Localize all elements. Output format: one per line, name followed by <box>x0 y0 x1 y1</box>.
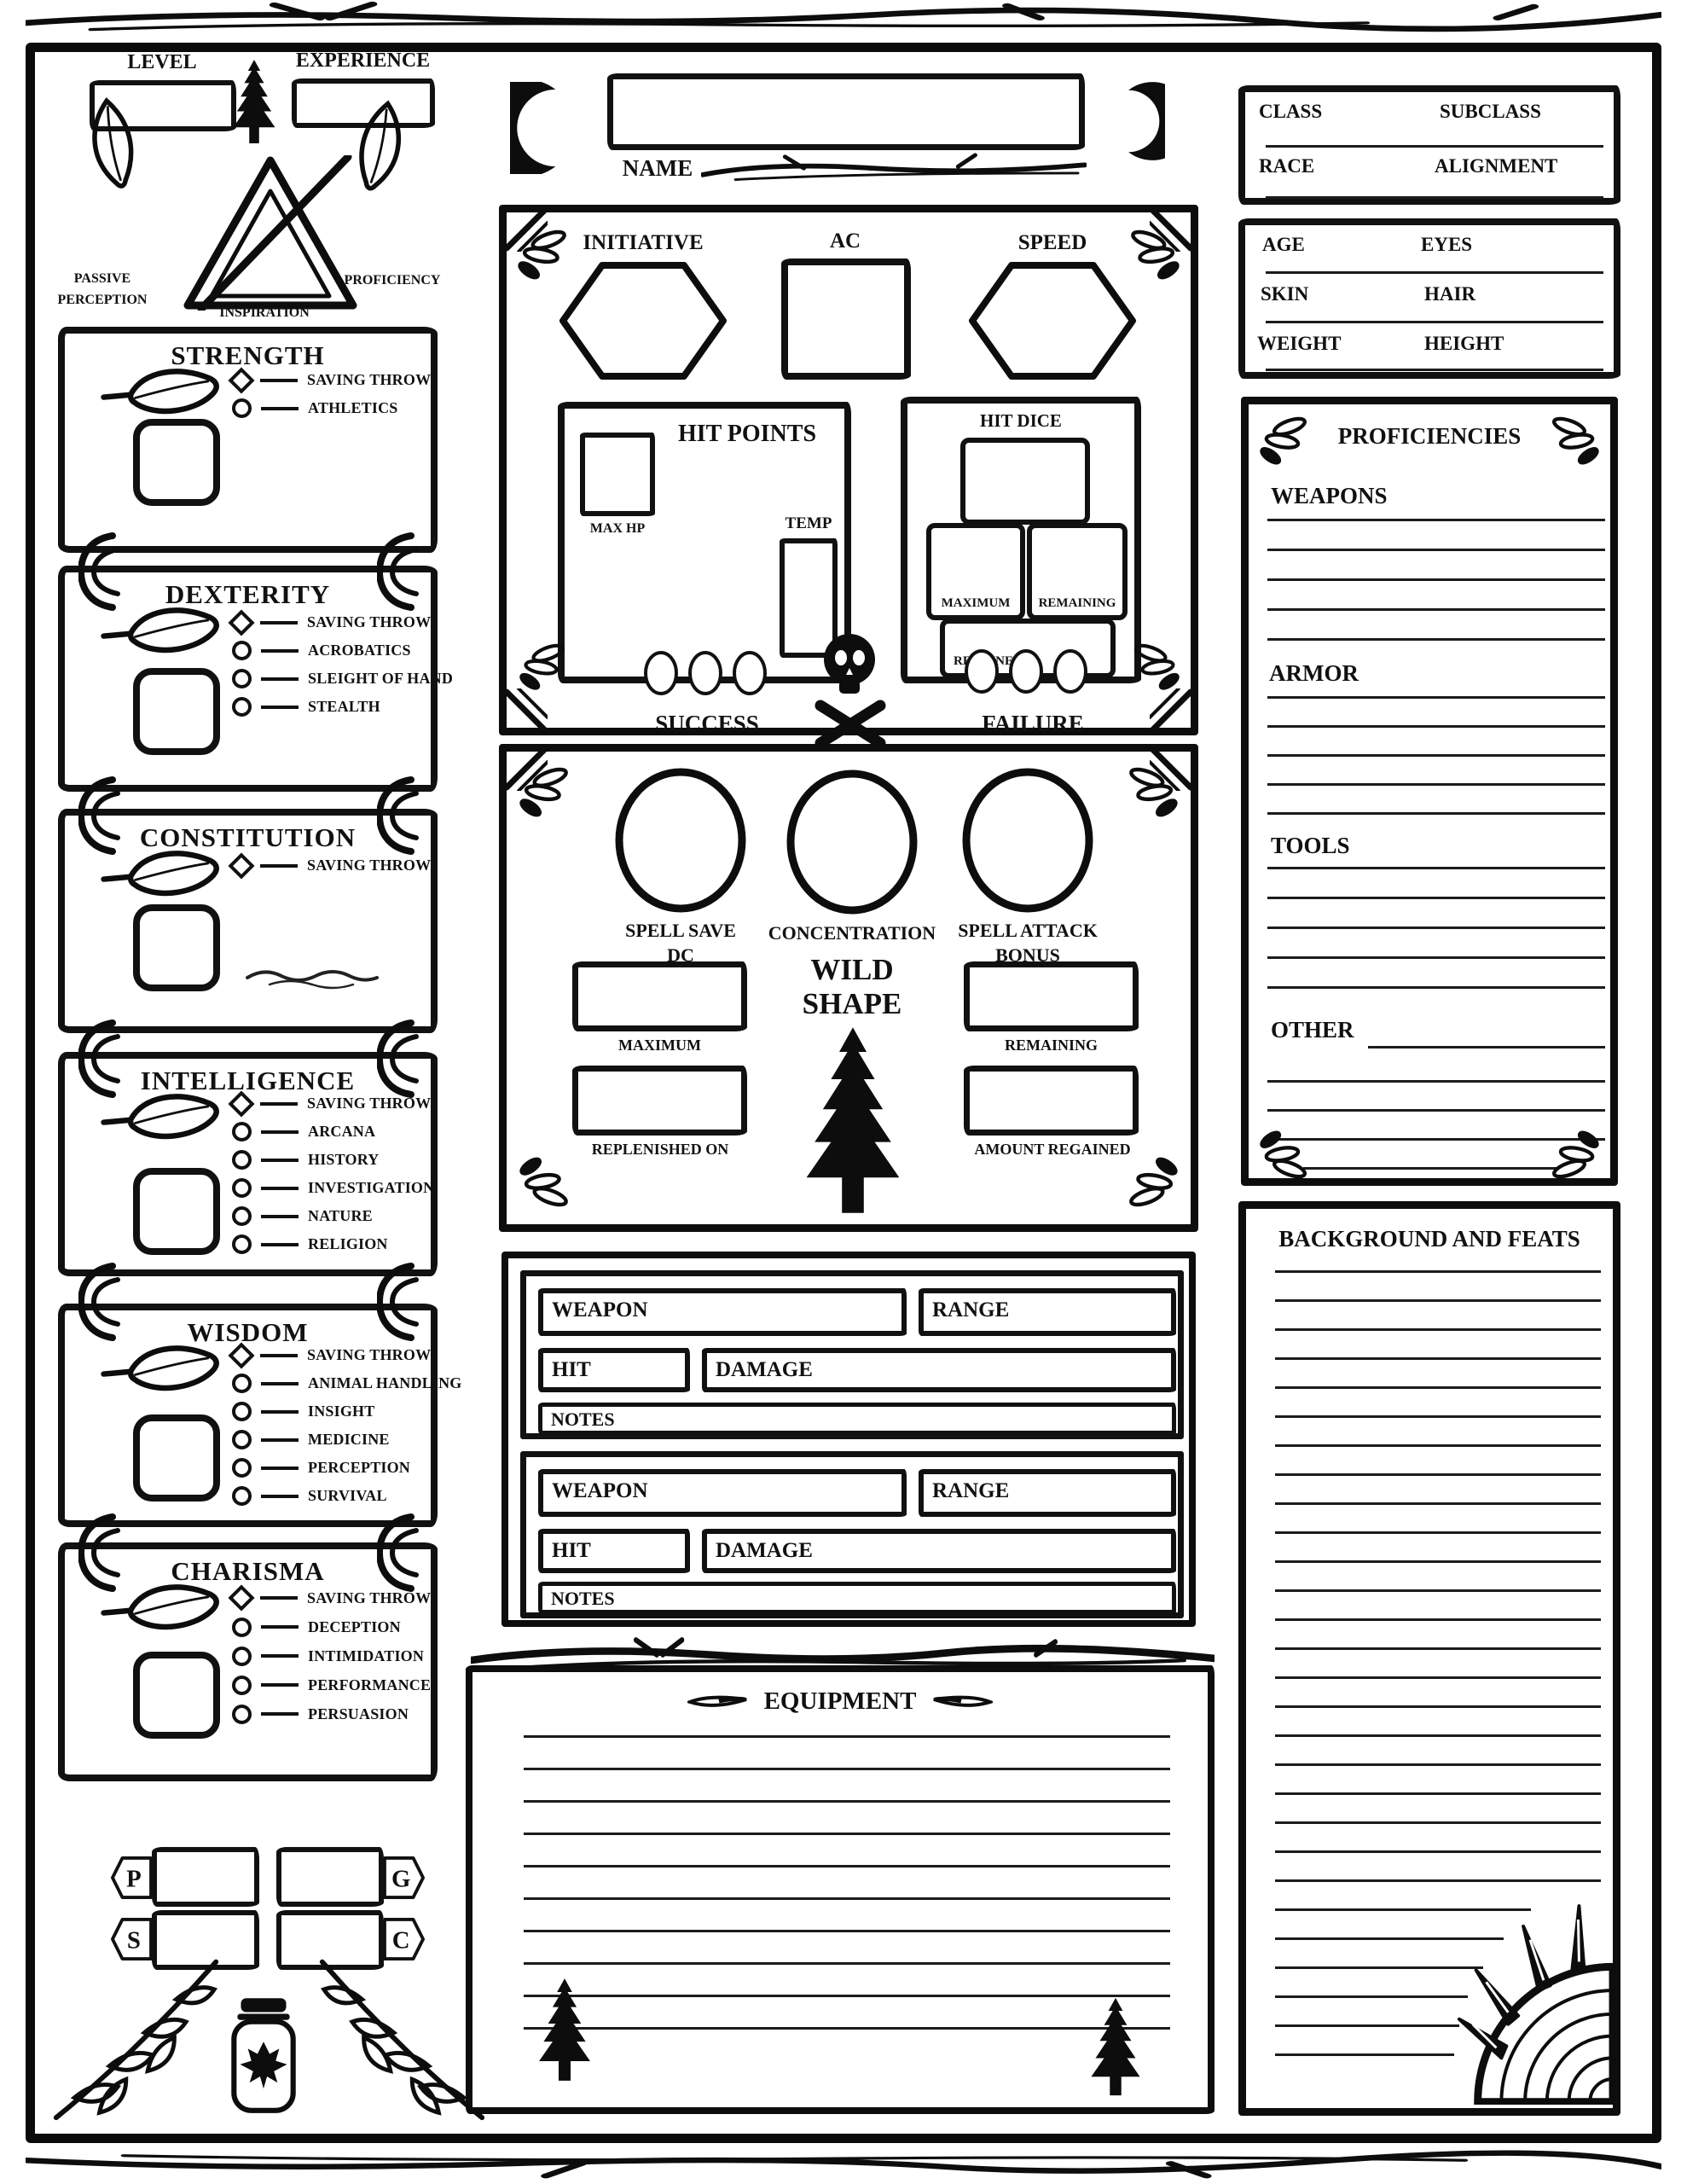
write-in-line[interactable] <box>524 1930 1170 1932</box>
write-in-line[interactable] <box>1267 783 1605 786</box>
jar-maple-leaf-icon <box>220 1996 307 2114</box>
write-in-line[interactable] <box>1275 1299 1601 1302</box>
hit-dice-box: HIT DICE MAXIMUM REMAINING REGAINED <box>901 397 1141 683</box>
equipment-lines <box>524 1735 1170 2059</box>
dash <box>261 1712 299 1716</box>
write-in-line[interactable] <box>1275 1531 1601 1534</box>
skill-row: SURVIVAL <box>232 1482 462 1510</box>
write-in-line[interactable] <box>1267 926 1605 929</box>
skill-row: ANIMAL HANDLING <box>232 1369 462 1397</box>
skill-row: PERCEPTION <box>232 1454 462 1482</box>
dash <box>261 1683 299 1687</box>
skill-marker[interactable] <box>232 1178 252 1198</box>
ring-connector-icon <box>377 775 426 857</box>
pine-tree-icon <box>223 43 285 160</box>
weapon-hit-field[interactable]: HIT <box>538 1529 690 1573</box>
dash <box>261 1382 299 1385</box>
initiative-label: INITIATIVE <box>558 231 728 255</box>
dash <box>260 1596 298 1600</box>
dash <box>260 864 298 868</box>
initiative-box[interactable] <box>558 260 728 381</box>
skill-row: INSIGHT <box>232 1397 462 1426</box>
weapon-range-field[interactable]: RANGE <box>919 1288 1176 1336</box>
tools-section-label: TOOLS <box>1271 833 1350 859</box>
write-in-line[interactable] <box>1275 2024 1459 2027</box>
saving-throw-marker[interactable] <box>228 609 254 636</box>
skill-row: SAVING THROW <box>232 366 431 394</box>
moon-icon <box>510 82 588 174</box>
write-in-line[interactable] <box>1275 1328 1601 1331</box>
write-in-line[interactable] <box>1267 608 1605 611</box>
leaf-icon <box>97 361 227 424</box>
wild-shape-amount-box[interactable] <box>964 1066 1139 1136</box>
leaf-sprig-icon <box>1549 1128 1600 1179</box>
armor-lines <box>1267 696 1605 841</box>
weapon-name-field[interactable]: WEAPON <box>538 1288 907 1336</box>
write-in-line[interactable] <box>1267 549 1605 551</box>
physical-details-box: AGE EYES SKIN HAIR WEIGHT HEIGHT <box>1238 218 1620 379</box>
dash <box>261 1215 299 1218</box>
write-in-line[interactable] <box>1267 1080 1605 1083</box>
weight-line[interactable] <box>1266 369 1603 371</box>
leaf-sprig-icon <box>1259 1128 1310 1179</box>
write-in-line[interactable] <box>1275 2053 1454 2056</box>
death-save-success-circles <box>641 649 769 697</box>
weapon-name-field[interactable]: WEAPON <box>538 1469 907 1517</box>
hit-dice-label: HIT DICE <box>907 410 1134 432</box>
skill-marker[interactable] <box>232 1618 252 1637</box>
name-label: NAME <box>611 155 704 182</box>
dash <box>260 1102 298 1106</box>
write-in-line[interactable] <box>524 1995 1170 1997</box>
skill-row: INTIMIDATION <box>232 1641 431 1670</box>
max-hp-label: MAX HP <box>573 521 662 537</box>
skill-marker[interactable] <box>232 1374 252 1393</box>
branch-bottom-icon <box>26 2143 1661 2182</box>
ring-connector-icon <box>377 531 426 613</box>
tools-lines <box>1267 867 1605 1016</box>
dash <box>261 677 299 681</box>
write-in-line[interactable] <box>524 1800 1170 1803</box>
background-feats-title: BACKGROUND AND FEATS <box>1246 1226 1613 1252</box>
leaf-sprig-icon <box>1131 643 1180 693</box>
leaf-icon <box>97 1338 227 1401</box>
skill-marker[interactable] <box>232 669 252 688</box>
proficiency-label: PROFICIENCY <box>341 273 443 288</box>
intelligence-score-box[interactable] <box>133 1168 220 1255</box>
svg-text:P: P <box>126 1866 142 1893</box>
weapon-hit-field[interactable]: HIT <box>538 1348 690 1392</box>
background-feats-panel: BACKGROUND AND FEATS <box>1238 1201 1620 2116</box>
experience-label: EXPERIENCE <box>288 49 438 73</box>
wild-shape-replenished-label: REPLENISHED ON <box>558 1141 762 1159</box>
race-line[interactable] <box>1266 196 1603 199</box>
write-in-line[interactable] <box>1275 1560 1601 1563</box>
name-box[interactable] <box>607 73 1085 150</box>
skill-row: DECEPTION <box>232 1612 431 1641</box>
write-in-line[interactable] <box>524 1768 1170 1770</box>
write-in-line[interactable] <box>1267 812 1605 815</box>
max-hp-box[interactable] <box>580 433 655 516</box>
leaf-sprig-icon <box>1126 767 1179 820</box>
write-in-line[interactable] <box>1275 1647 1601 1650</box>
write-in-line[interactable] <box>524 1865 1170 1867</box>
write-in-line[interactable] <box>1275 1763 1601 1766</box>
dash <box>261 1654 299 1658</box>
ring-connector-icon <box>377 1261 426 1343</box>
write-in-line[interactable] <box>1275 1357 1601 1360</box>
skill-row: PERFORMANCE <box>232 1670 431 1699</box>
level-label: LEVEL <box>85 51 239 74</box>
dash <box>261 1467 299 1470</box>
inspiration-label: INSPIRATION <box>213 305 316 321</box>
skill-row: MEDICINE <box>232 1426 462 1454</box>
ring-connector-icon <box>78 775 128 857</box>
wild-shape-amount-label: AMOUNT REGAINED <box>950 1141 1155 1159</box>
wild-shape-remaining-box[interactable] <box>964 961 1139 1031</box>
success-circle[interactable] <box>686 649 725 697</box>
hit-dice-maximum-box[interactable]: MAXIMUM <box>926 523 1025 620</box>
weapon-damage-field[interactable]: DAMAGE <box>702 1529 1176 1573</box>
moon-icon <box>1102 80 1165 162</box>
pine-tree-icon <box>785 1023 921 1217</box>
leaf-icon <box>67 90 161 199</box>
write-in-line[interactable] <box>1275 1386 1601 1389</box>
dash <box>261 407 299 410</box>
write-in-line[interactable] <box>1275 1270 1601 1273</box>
platinum-box[interactable] <box>152 1847 259 1907</box>
dexterity-score-box[interactable] <box>133 668 220 755</box>
strength-score-box[interactable] <box>133 419 220 506</box>
write-in-line[interactable] <box>524 1962 1170 1965</box>
class-line[interactable] <box>1266 145 1603 148</box>
ac-label: AC <box>771 229 919 253</box>
skill-marker[interactable] <box>232 1150 252 1170</box>
spell-save-dc-label: SPELL SAVE DC <box>604 919 757 967</box>
dash <box>260 379 298 382</box>
wisdom-score-box[interactable] <box>133 1414 220 1501</box>
class-details-box: CLASS SUBCLASS RACE ALIGNMENT <box>1238 85 1620 205</box>
skull-crossbones-icon <box>807 624 892 752</box>
wood-grain-icon <box>244 959 380 996</box>
write-in-line[interactable] <box>1267 754 1605 757</box>
spell-save-dc-circle[interactable] <box>612 765 749 915</box>
death-save-failure-circles <box>962 648 1090 695</box>
dash <box>261 1159 299 1162</box>
skill-row: PERSUASION <box>232 1699 431 1728</box>
write-in-line[interactable] <box>1267 956 1605 959</box>
write-in-line[interactable] <box>1267 696 1605 699</box>
failure-circle[interactable] <box>962 648 1001 695</box>
write-in-line[interactable] <box>1275 1734 1601 1737</box>
success-circle[interactable] <box>641 649 681 697</box>
wild-shape-maximum-label: MAXIMUM <box>572 1037 747 1054</box>
skill-marker[interactable] <box>232 1430 252 1449</box>
platinum-tag: P <box>111 1856 152 1900</box>
temp-label: TEMP <box>773 514 844 533</box>
skill-marker[interactable] <box>232 398 252 418</box>
weapons-panel: WEAPON RANGE HIT DAMAGE NOTES WEAPON RAN… <box>501 1252 1196 1627</box>
character-sheet: LEVEL EXPERIENCE PASSIVE PERCEPTION INSP… <box>0 0 1687 2184</box>
leaf-sprig-icon <box>1126 1154 1179 1207</box>
passive-perception-label: PASSIVE PERCEPTION <box>44 269 160 311</box>
dash <box>261 1495 299 1498</box>
equipment-title: EQUIPMENT <box>764 1687 917 1716</box>
write-in-line[interactable] <box>1275 1850 1601 1853</box>
ring-connector-icon <box>78 531 128 613</box>
write-in-line[interactable] <box>1275 1502 1601 1505</box>
write-in-line[interactable] <box>1267 578 1605 581</box>
hair-label: HAIR <box>1424 283 1475 305</box>
skill-row: NATURE <box>232 1202 434 1230</box>
write-in-line[interactable] <box>1275 1589 1601 1592</box>
spellcasting-panel: SPELL SAVE DC CONCENTRATION SPELL ATTACK… <box>499 744 1198 1232</box>
skill-marker[interactable] <box>232 697 252 717</box>
success-label: SUCCESS <box>626 711 788 737</box>
ring-connector-icon <box>78 1261 128 1343</box>
leaf-sprig-icon <box>519 767 571 820</box>
dash <box>261 1410 299 1414</box>
constitution-score-box[interactable] <box>133 904 220 991</box>
skin-label: SKIN <box>1261 283 1308 305</box>
wild-shape-maximum-box[interactable] <box>572 961 747 1031</box>
race-label: RACE <box>1259 155 1314 177</box>
skill-marker[interactable] <box>232 1122 252 1141</box>
ring-connector-icon <box>78 1018 128 1100</box>
write-in-line[interactable] <box>1275 1879 1601 1882</box>
write-in-line[interactable] <box>1267 519 1605 521</box>
leaf-accent-icon <box>687 1693 749 1711</box>
corner-mark-icon <box>503 688 548 733</box>
wild-shape-remaining-label: REMAINING <box>964 1037 1139 1054</box>
dash <box>261 706 299 709</box>
dash <box>261 1438 299 1442</box>
skill-marker[interactable] <box>232 1705 252 1724</box>
sun-icon <box>1452 1891 1613 2105</box>
write-in-line[interactable] <box>1275 1705 1601 1708</box>
leaf-accent-icon <box>931 1693 993 1711</box>
age-label: AGE <box>1262 234 1305 256</box>
weapon-card: WEAPON RANGE HIT DAMAGE NOTES <box>520 1451 1184 1618</box>
skill-marker[interactable] <box>232 1676 252 1695</box>
corner-mark-icon <box>1150 688 1194 733</box>
write-in-line[interactable] <box>1267 638 1605 641</box>
skill-row: ACROBATICS <box>232 636 453 665</box>
write-in-line[interactable] <box>1303 1167 1559 1170</box>
inspiration-triangle-icon[interactable] <box>181 155 360 311</box>
ability-block-strength: STRENGTH SAVING THROW ATHLETICS <box>58 327 438 553</box>
laurel-branch-icon <box>314 1949 489 2124</box>
failure-circle[interactable] <box>1006 648 1046 695</box>
spell-attack-circle[interactable] <box>959 765 1096 915</box>
write-in-line[interactable] <box>1275 1676 1601 1679</box>
proficiencies-title: PROFICIENCIES <box>1249 423 1610 450</box>
saving-throw-marker[interactable] <box>228 852 254 879</box>
pine-tree-icon <box>1080 1984 1151 2109</box>
ring-connector-icon <box>377 1512 426 1594</box>
write-in-line[interactable] <box>524 2027 1170 2030</box>
skill-marker[interactable] <box>232 1206 252 1226</box>
skill-row: INVESTIGATION <box>232 1174 434 1202</box>
armor-section-label: ARMOR <box>1269 660 1359 687</box>
speed-label: SPEED <box>967 231 1138 255</box>
branch-icon <box>701 152 1087 191</box>
class-label: CLASS <box>1259 101 1322 123</box>
other-section-label: OTHER <box>1271 1017 1354 1043</box>
weapon-card: WEAPON RANGE HIT DAMAGE NOTES <box>520 1270 1184 1439</box>
weapon-notes-field[interactable]: NOTES <box>538 1582 1176 1614</box>
gold-box[interactable] <box>276 1847 384 1907</box>
write-in-line[interactable] <box>1275 1415 1601 1418</box>
hit-points-label: HIT POINTS <box>653 421 841 448</box>
success-circle[interactable] <box>730 649 769 697</box>
write-in-line[interactable] <box>1275 1618 1601 1621</box>
combat-panel: INITIATIVE AC SPEED HIT POINTS MAX HP TE… <box>499 205 1198 735</box>
write-in-line[interactable] <box>1267 897 1605 899</box>
failure-circle[interactable] <box>1051 648 1090 695</box>
alignment-label: ALIGNMENT <box>1435 155 1557 177</box>
other-inline-line[interactable] <box>1368 1046 1605 1048</box>
gold-tag: G <box>384 1856 425 1900</box>
skill-row: RELIGION <box>232 1230 434 1258</box>
skill-marker[interactable] <box>232 1234 252 1254</box>
dash <box>261 1625 299 1629</box>
equipment-panel: EQUIPMENT <box>466 1665 1215 2114</box>
skill-marker[interactable] <box>232 1402 252 1421</box>
hit-dice-remaining-box[interactable]: REMAINING <box>1027 523 1128 620</box>
weapons-section-label: WEAPONS <box>1271 483 1388 509</box>
concentration-label: CONCENTRATION <box>761 922 943 944</box>
concentration-circle[interactable] <box>784 767 920 917</box>
equipment-header: EQUIPMENT <box>472 1687 1208 1716</box>
skill-row: ARCANA <box>232 1118 434 1146</box>
weapon-notes-field[interactable]: NOTES <box>538 1403 1176 1435</box>
skill-row: SLEIGHT OF HAND <box>232 665 453 693</box>
hit-dice-top-box[interactable] <box>960 438 1090 525</box>
skill-marker[interactable] <box>232 1486 252 1506</box>
ring-connector-icon <box>78 1512 128 1594</box>
skill-marker[interactable] <box>232 1647 252 1666</box>
speed-box[interactable] <box>967 260 1138 381</box>
write-in-line[interactable] <box>1267 1109 1605 1112</box>
skill-marker[interactable] <box>232 641 252 660</box>
proficiencies-panel: PROFICIENCIES WEAPONS ARMOR TOOLS OTHER <box>1241 397 1618 1186</box>
weight-label: WEIGHT <box>1257 333 1341 355</box>
saving-throw-marker[interactable] <box>228 367 254 393</box>
charisma-score-box[interactable] <box>133 1652 220 1739</box>
ac-box[interactable] <box>781 258 911 380</box>
wild-shape-replenished-box[interactable] <box>572 1066 747 1136</box>
write-in-line[interactable] <box>1275 1821 1601 1824</box>
branch-top-icon <box>26 0 1661 41</box>
write-in-line[interactable] <box>524 1735 1170 1738</box>
dash <box>260 1354 298 1357</box>
skill-row: STEALTH <box>232 693 453 721</box>
skill-row: HISTORY <box>232 1146 434 1174</box>
wild-shape-title: WILD SHAPE <box>780 953 925 1022</box>
pine-tree-icon <box>527 1950 602 2109</box>
spell-attack-bonus-label: SPELL ATTACK BONUS <box>951 919 1104 967</box>
svg-text:G: G <box>391 1866 410 1893</box>
leaf-sprig-icon <box>519 1154 571 1207</box>
write-in-line[interactable] <box>1275 1792 1601 1795</box>
skill-row: ATHLETICS <box>232 394 431 422</box>
leaf-sprig-icon <box>519 643 568 693</box>
dash <box>261 1187 299 1190</box>
subclass-label: SUBCLASS <box>1440 101 1541 123</box>
write-in-line[interactable] <box>524 1897 1170 1900</box>
dash <box>261 1243 299 1246</box>
age-line[interactable] <box>1266 271 1603 274</box>
laurel-branch-icon <box>49 1949 224 2124</box>
failure-label: FAILURE <box>952 711 1114 737</box>
write-in-line[interactable] <box>1275 1995 1468 1998</box>
weapons-lines <box>1267 519 1605 668</box>
height-label: HEIGHT <box>1424 333 1504 355</box>
ring-connector-icon <box>377 1018 426 1100</box>
write-in-line[interactable] <box>1267 867 1605 869</box>
maximum-label: MAXIMUM <box>931 596 1020 611</box>
weapon-damage-field[interactable]: DAMAGE <box>702 1348 1176 1392</box>
saving-throw-marker[interactable] <box>228 1342 254 1368</box>
write-in-line[interactable] <box>1275 1444 1601 1447</box>
write-in-line[interactable] <box>524 1833 1170 1835</box>
eyes-label: EYES <box>1421 234 1472 256</box>
skill-marker[interactable] <box>232 1458 252 1478</box>
saving-throw-marker[interactable] <box>228 1090 254 1117</box>
write-in-line[interactable] <box>1267 986 1605 989</box>
skill-row: SAVING THROW <box>232 1341 462 1369</box>
dash <box>260 621 298 624</box>
weapon-range-field[interactable]: RANGE <box>919 1469 1176 1517</box>
skin-line[interactable] <box>1266 321 1603 323</box>
dash <box>261 649 299 653</box>
remaining-label: REMAINING <box>1032 596 1122 611</box>
write-in-line[interactable] <box>1267 725 1605 728</box>
dash <box>261 1130 299 1134</box>
write-in-line[interactable] <box>1275 1473 1601 1476</box>
saving-throw-marker[interactable] <box>228 1584 254 1611</box>
